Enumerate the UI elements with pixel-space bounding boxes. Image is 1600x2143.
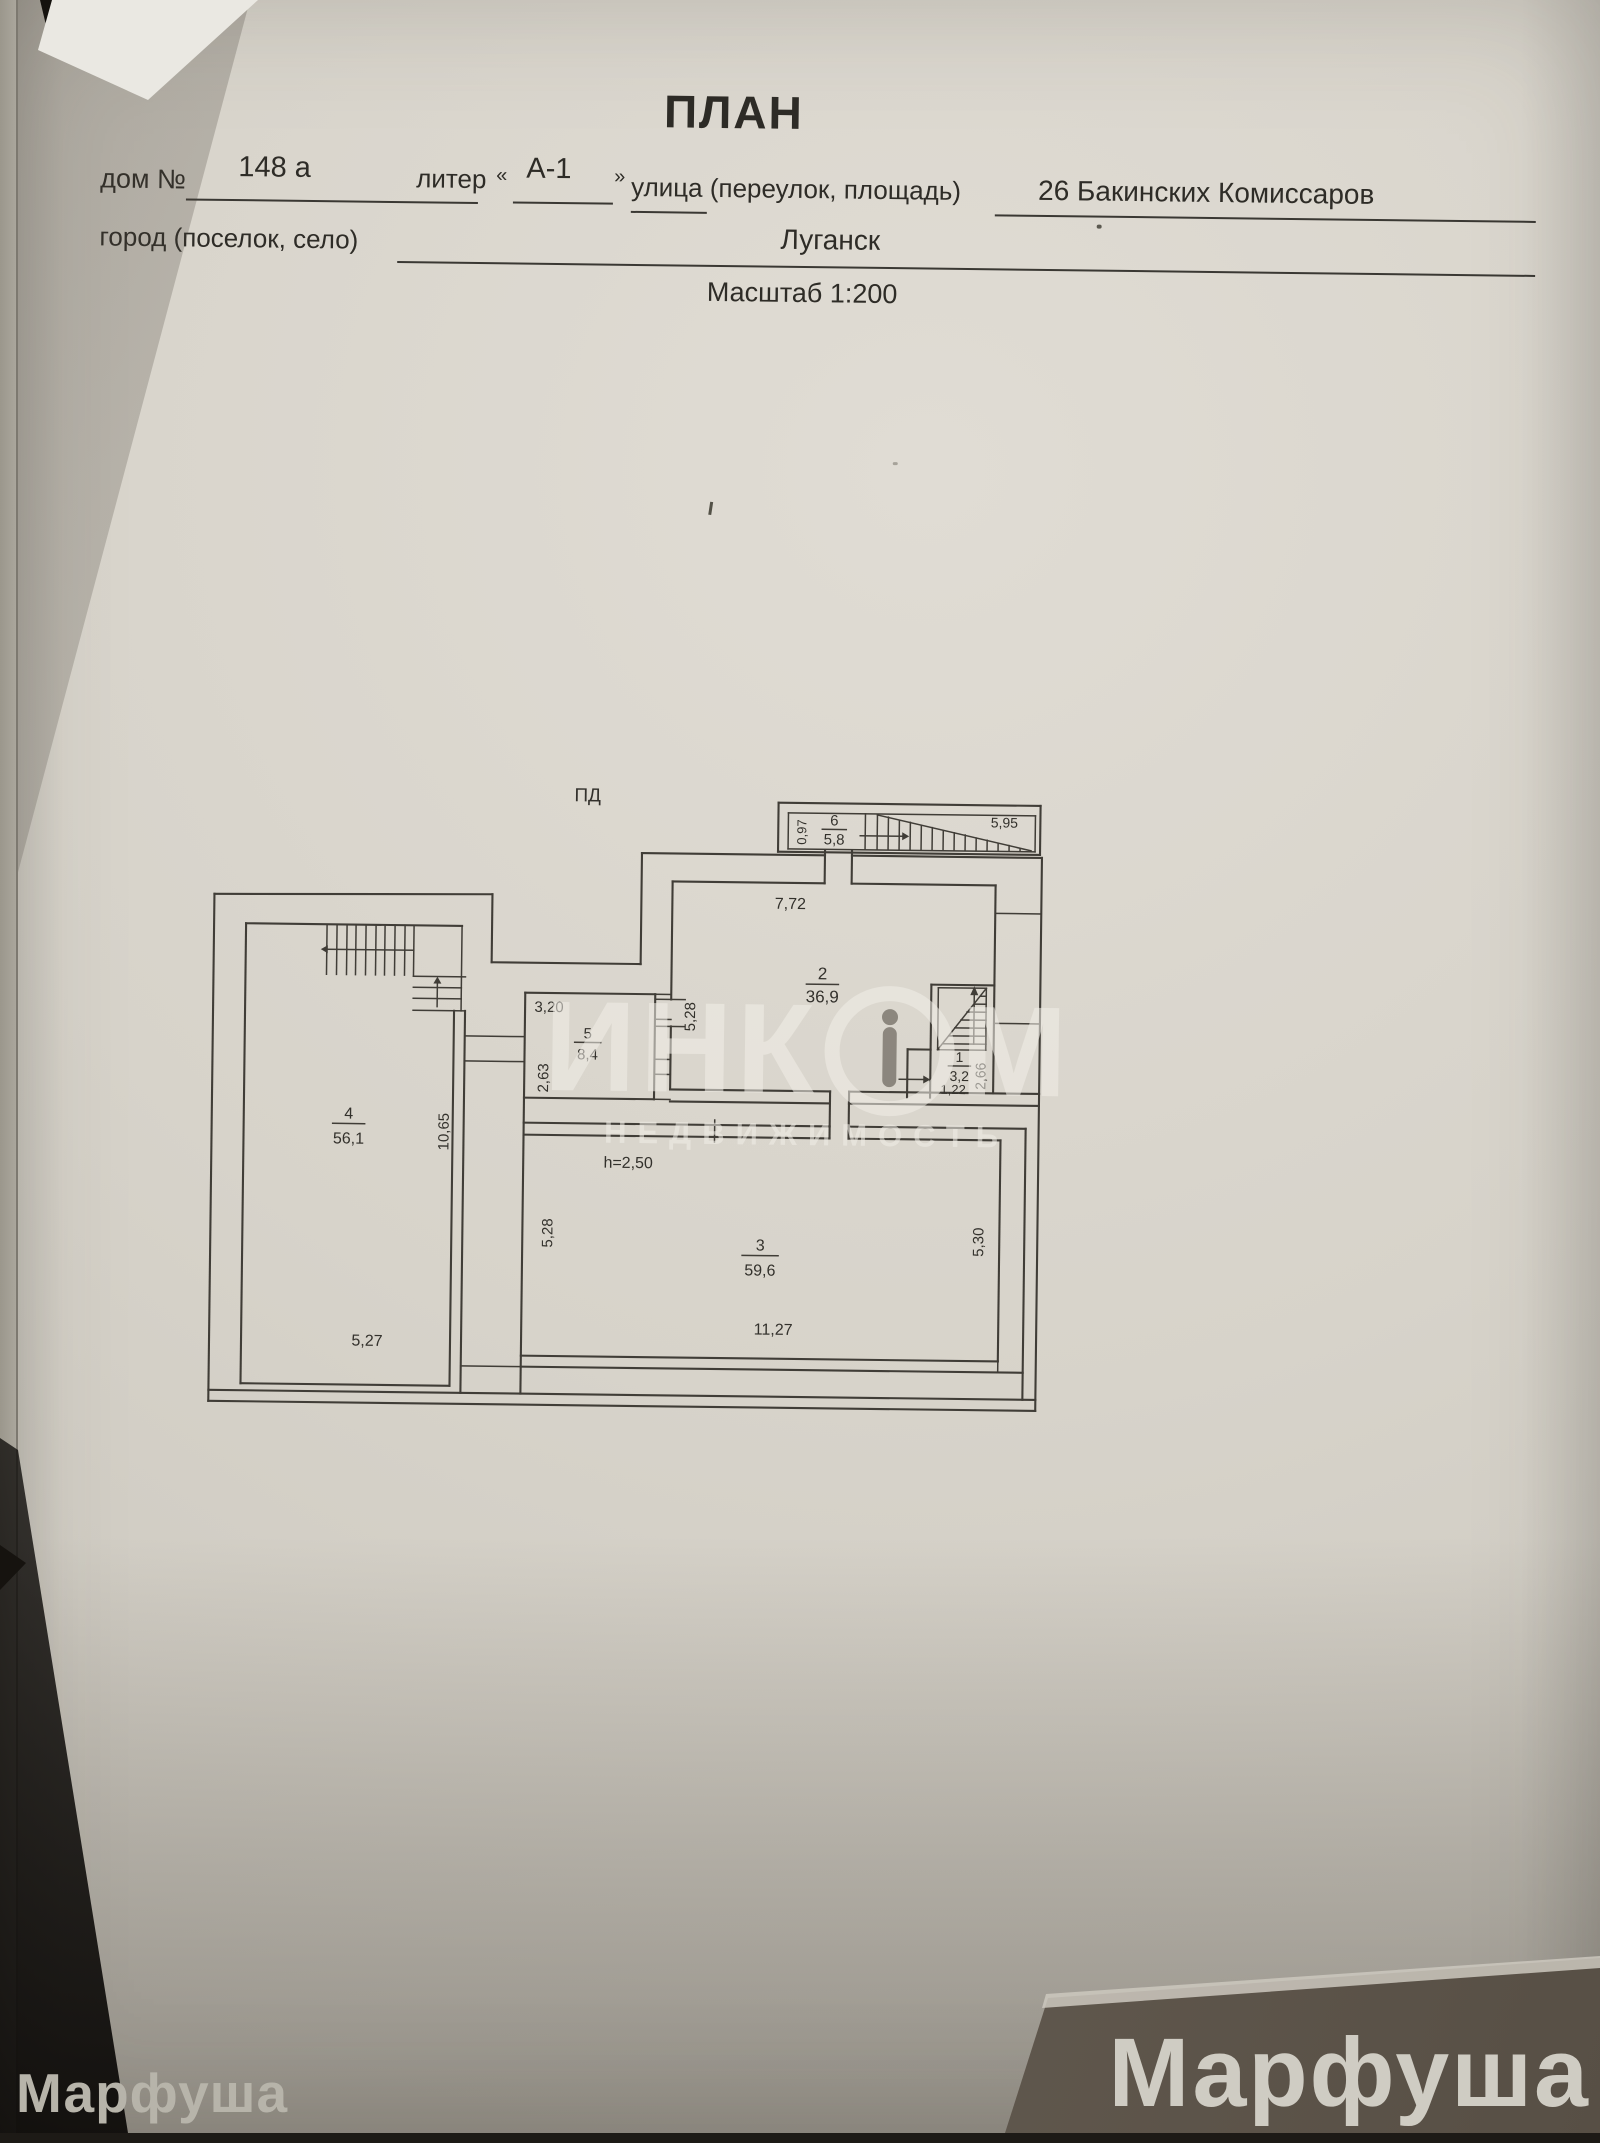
fill-line-house xyxy=(186,198,478,204)
room3-dim-bottom: 11,27 xyxy=(754,1321,793,1338)
fill-line-liter xyxy=(513,201,613,204)
agency-name-left: ИНК xyxy=(543,983,819,1114)
room3-height-note: h=2,50 xyxy=(603,1155,653,1173)
room3-dim-left: 5,28 xyxy=(539,1218,556,1247)
room4-dim-bottom: 5,27 xyxy=(351,1333,382,1350)
agency-name-right: М xyxy=(960,988,1072,1117)
fill-line-city xyxy=(397,261,1535,277)
stair-direction-arrow-left xyxy=(321,945,328,953)
corridor-walls xyxy=(449,1011,525,1394)
stair-direction-arrow-right xyxy=(902,832,909,840)
person-icon xyxy=(882,1009,898,1025)
fill-line-street xyxy=(995,214,1536,223)
liter-open-quote: « xyxy=(496,164,507,187)
room3-walls xyxy=(520,1118,1025,1400)
agency-subtitle: НЕДВИЖИМОСТЬ xyxy=(536,1114,1076,1157)
watermark-bottom-left: Марфуша xyxy=(16,2061,288,2125)
room4-number: 4 xyxy=(344,1105,353,1122)
street-value: 26 Бакинских Комиссаров xyxy=(1038,175,1375,211)
page-title: ПЛАН xyxy=(664,84,804,140)
room4-area: 56,1 xyxy=(333,1130,364,1147)
liter-value: А-1 xyxy=(526,153,572,187)
room2-dim-top: 7,72 xyxy=(775,896,806,913)
ink-tick xyxy=(708,502,713,515)
room4-stairwell xyxy=(240,923,466,1386)
room3-area: 59,6 xyxy=(744,1262,775,1279)
annex-dim-length: 5,95 xyxy=(991,814,1019,830)
stair-direction-arrow-up-small xyxy=(433,977,441,984)
street-label: улица (переулок, площадь) xyxy=(631,172,961,207)
ink-dot xyxy=(1097,225,1102,229)
ink-speck xyxy=(893,462,898,465)
underline-street-word xyxy=(631,211,707,214)
agency-watermark: ИНК М НЕДВИЖИМОСТЬ xyxy=(536,982,1078,1157)
annex-dim-width: 0,97 xyxy=(794,819,809,844)
liter-label: литер xyxy=(416,163,487,195)
room3-number: 3 xyxy=(756,1237,765,1254)
document-content: ПЛАН дом № 148 а литер « А-1 » улица (пе… xyxy=(0,0,1600,2143)
section-label: ПД xyxy=(574,785,601,806)
room3-dim-right: 5,30 xyxy=(970,1228,987,1257)
room4-dim-right: 10,65 xyxy=(435,1113,452,1151)
watermark-bottom-right: Марфуша xyxy=(1108,2017,1590,2129)
annex-area: 5,8 xyxy=(824,831,845,848)
house-number-value: 148 а xyxy=(238,151,311,185)
annex-number: 6 xyxy=(830,812,839,829)
city-value: Луганск xyxy=(780,224,880,257)
scale-note: Масштаб 1:200 xyxy=(707,277,898,310)
liter-close-quote: » xyxy=(614,166,625,189)
agency-logo-circle-icon xyxy=(824,985,956,1117)
person-icon-body xyxy=(882,1027,897,1087)
